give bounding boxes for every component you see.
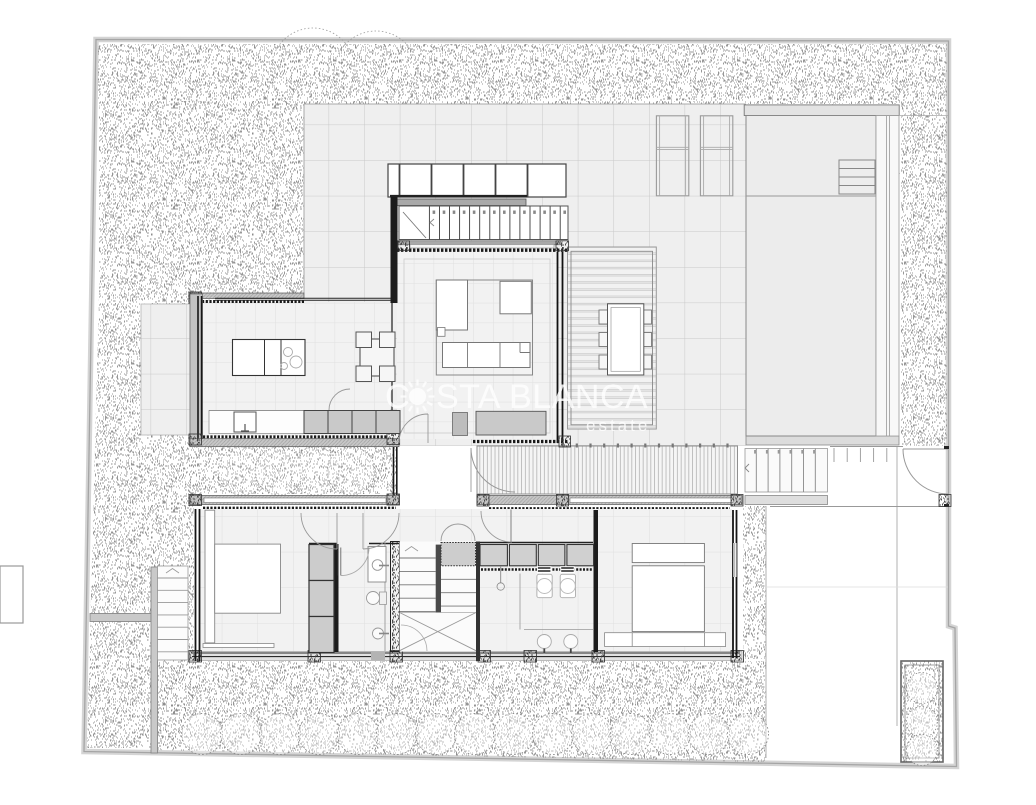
svg-text:estate: estate <box>586 416 650 435</box>
svg-text:STA BLANCA: STA BLANCA <box>436 378 648 416</box>
